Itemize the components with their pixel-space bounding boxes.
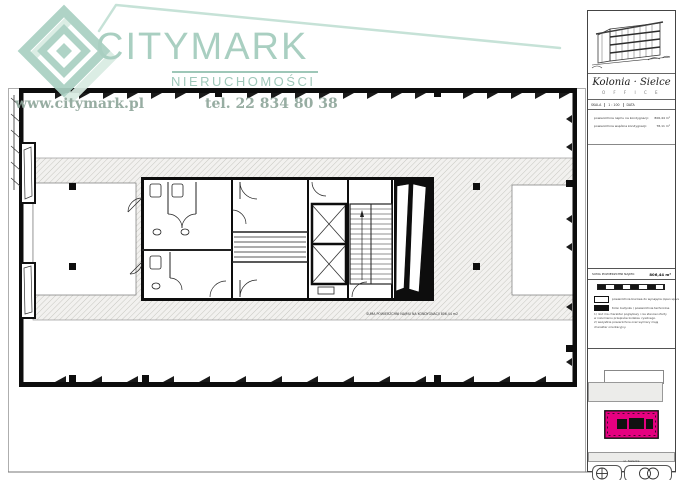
meta-date-label: DATA bbox=[624, 103, 638, 107]
legend-label: powierzchnia biurowa do wynajęcia (open … bbox=[612, 297, 679, 301]
open-area-right bbox=[512, 185, 573, 295]
floor-plan-sheet: SUMA POWIERZCHNI NAJMU NA KONDYGNACJI 80… bbox=[0, 0, 679, 480]
brand-name: CITYMARK bbox=[96, 28, 308, 66]
graphic-scale-bar bbox=[588, 284, 675, 290]
legend-label: trzon budynku / powierzchnie techniczne bbox=[612, 306, 669, 310]
title-block: Kolonia · Sielce O F F I C E SKALA 1 : 1… bbox=[587, 10, 676, 472]
location-rings-icon bbox=[624, 465, 672, 480]
north-arrow-icon bbox=[592, 465, 622, 480]
open-area-left bbox=[33, 183, 136, 295]
site-key-plan: ul. Sielecka bbox=[588, 348, 675, 471]
note-line: charakter orientacyjny. bbox=[594, 325, 670, 329]
info-label: powierzchnia najmu na kondygnacji: bbox=[594, 116, 649, 120]
plan-area-note: SUMA POWIERZCHNI NAJMU NA KONDYGNACJI 80… bbox=[366, 312, 458, 316]
street-label: ul. Sielecka bbox=[588, 459, 675, 463]
project-name-block: Kolonia · Sielce O F F I C E bbox=[588, 73, 675, 100]
info-rows: powierzchnia najmu na kondygnacji: 806,4… bbox=[588, 109, 675, 145]
legend: powierzchnia biurowa do wynajęcia (open … bbox=[588, 294, 675, 311]
area-summary-row: SUMA POWIERZCHNI NAJMU: 806,44 m² bbox=[588, 268, 675, 280]
highlighted-building bbox=[604, 410, 659, 439]
legend-swatch-black bbox=[594, 305, 609, 312]
window-ticks-bottom bbox=[55, 376, 546, 382]
legend-swatch-white bbox=[594, 296, 609, 303]
meta-scale-label: SKALA bbox=[588, 103, 605, 107]
info-label: powierzchnia wspólna kondygnacji: bbox=[594, 124, 647, 128]
adjacent-building-band bbox=[588, 382, 663, 402]
area-value: 806,44 m² bbox=[649, 272, 671, 277]
notes: 1) rzut ma charakter poglądowy i nie sta… bbox=[588, 312, 675, 329]
brand-rule bbox=[172, 71, 318, 73]
citymark-watermark: CITYMARK NIERUCHOMOŚCI www.citymark.pl t… bbox=[0, 0, 585, 130]
project-subtitle: O F F I C E bbox=[588, 90, 675, 95]
service-shafts bbox=[394, 180, 431, 298]
project-name: Kolonia · Sielce bbox=[588, 77, 675, 88]
building-core bbox=[128, 179, 433, 300]
info-row: powierzchnia wspólna kondygnacji: 78,11 … bbox=[588, 122, 675, 130]
brand-subtitle: NIERUCHOMOŚCI bbox=[171, 74, 315, 89]
info-row: powierzchnia najmu na kondygnacji: 806,4… bbox=[588, 114, 675, 122]
legend-row: powierzchnia biurowa do wynajęcia (open … bbox=[594, 296, 675, 303]
building-sketch bbox=[588, 13, 675, 71]
info-value: 806,44 m² bbox=[654, 116, 670, 120]
staircase bbox=[350, 204, 392, 297]
meta-scale-value: 1 : 100 bbox=[605, 103, 623, 107]
brand-website: www.citymark.pl bbox=[15, 96, 144, 112]
brand-phone: tel. 22 834 80 38 bbox=[205, 96, 338, 112]
area-label: SUMA POWIERZCHNI NAJMU: bbox=[592, 272, 635, 276]
info-value: 78,11 m² bbox=[656, 124, 670, 128]
legend-row: trzon budynku / powierzchnie techniczne bbox=[594, 305, 675, 312]
